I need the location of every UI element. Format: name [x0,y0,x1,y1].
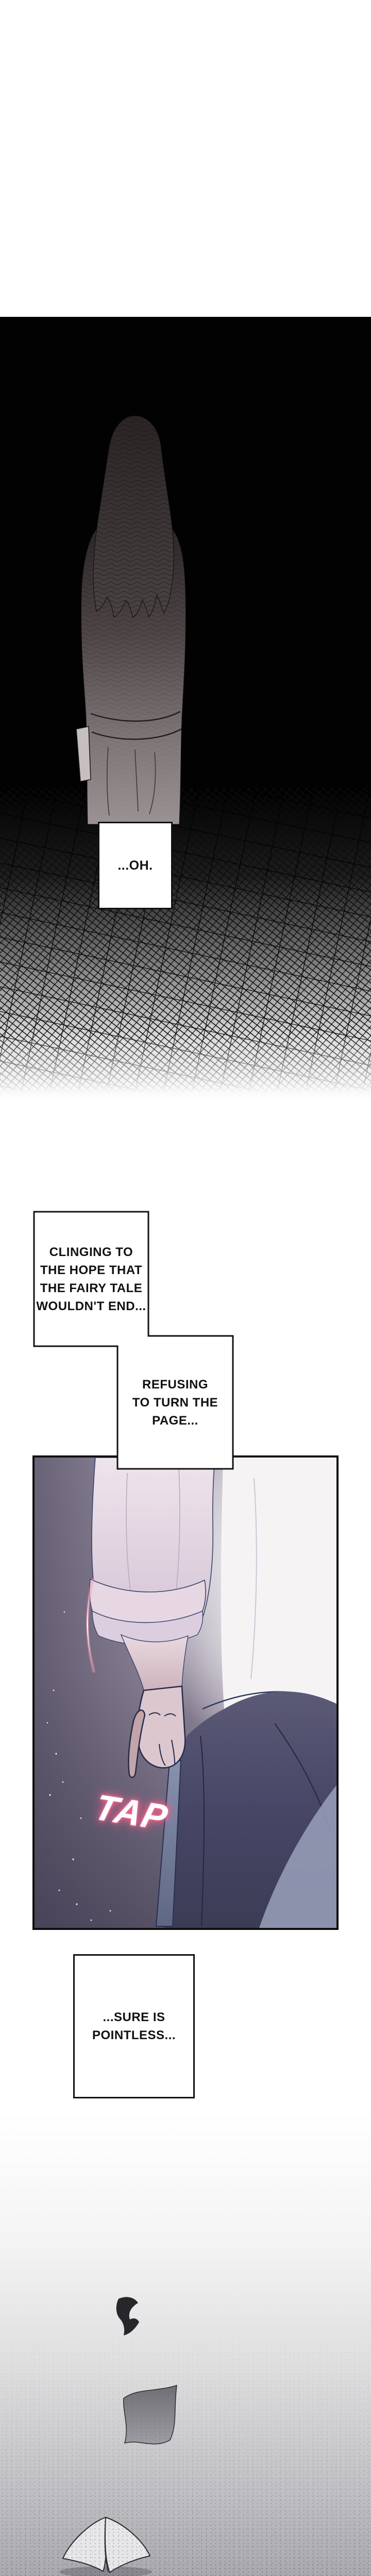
panel-purple-hand-scene [32,1455,339,1930]
narration-text-clinging: CLINGING TO THE HOPE THAT THE FAIRY TALE… [36,1243,146,1315]
narration-box-refusing: REFUSING TO TURN THE PAGE... [117,1336,233,1469]
silhouette-figure-illustration [0,317,371,829]
purple-scene-illustration [35,1458,336,1928]
narration-box-clinging: CLINGING TO THE HOPE THAT THE FAIRY TALE… [34,1212,148,1346]
speech-box-oh: ...OH. [98,822,173,909]
narration-text-refusing: REFUSING TO TURN THE PAGE... [132,1376,218,1430]
narration-box-pointless: ...SURE IS POINTLESS... [73,1954,195,2098]
crosshatch-transition-illustration [0,788,371,1103]
grain-texture-overlay [0,2293,371,2576]
speech-text-oh: ...OH. [117,857,153,875]
narration-text-pointless: ...SURE IS POINTLESS... [92,2008,176,2044]
